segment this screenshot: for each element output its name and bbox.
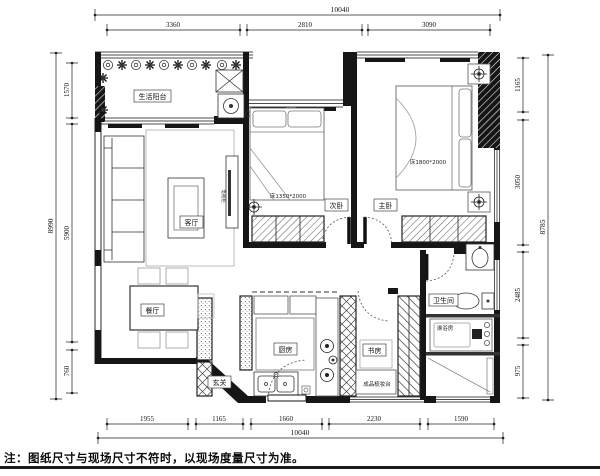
svg-text:餐厅: 餐厅 bbox=[146, 306, 160, 315]
label-study: 书房 bbox=[363, 344, 386, 356]
dim-lines-left bbox=[56, 53, 72, 399]
window-balcony-living bbox=[101, 118, 214, 128]
dim-left-3: 760 bbox=[63, 365, 71, 376]
tv bbox=[228, 170, 231, 216]
label-master-bed-size: 床1800*2000 bbox=[410, 158, 447, 166]
wardrobe-bedroom2 bbox=[252, 216, 324, 242]
window-balcony-top bbox=[95, 52, 253, 58]
label-dining: 餐厅 bbox=[141, 304, 164, 316]
balcony-furniture bbox=[98, 60, 251, 118]
label-living: 客厅 bbox=[180, 216, 203, 228]
drawing-note: 注：图纸尺寸与现场尺寸不符时，以现场度量尺寸为准。 bbox=[4, 450, 304, 466]
dim-bottom-5: 1590 bbox=[454, 415, 469, 423]
svg-text:卫生间: 卫生间 bbox=[433, 296, 454, 305]
master-furniture bbox=[396, 64, 490, 212]
label-kitchen: 厨房 bbox=[274, 343, 297, 355]
cabinet-kitchen-study bbox=[340, 296, 356, 396]
svg-text:客厅: 客厅 bbox=[185, 218, 199, 227]
svg-text:主卧: 主卧 bbox=[379, 201, 393, 210]
dim-right-4: 975 bbox=[514, 365, 522, 376]
dim-top-total: 10040 bbox=[331, 5, 350, 14]
label-entry: 玄关 bbox=[208, 376, 231, 388]
dim-left-1: 1570 bbox=[63, 83, 71, 98]
shower-tray bbox=[430, 319, 492, 351]
dim-bottom-total: 10040 bbox=[291, 428, 310, 437]
svg-text:生活阳台: 生活阳台 bbox=[139, 92, 167, 101]
window-bath-right bbox=[494, 260, 501, 310]
window-master-right bbox=[494, 150, 501, 222]
dim-top-1: 3360 bbox=[166, 21, 181, 29]
toilet bbox=[453, 293, 494, 309]
svg-text:次卧: 次卧 bbox=[330, 201, 344, 210]
dim-bottom-3: 1660 bbox=[279, 415, 294, 423]
dim-left-total: 8990 bbox=[46, 218, 55, 233]
dim-top-3: 3090 bbox=[422, 21, 437, 29]
dim-bottom-4: 2230 bbox=[367, 415, 382, 423]
bottom-rule bbox=[0, 466, 600, 469]
dim-bottom-2: 1165 bbox=[212, 415, 226, 423]
label-bedroom2: 次卧 bbox=[325, 199, 348, 211]
window-bottom-2 bbox=[436, 397, 490, 402]
kitchen-wall-strip bbox=[240, 296, 252, 370]
svg-text:书房: 书房 bbox=[368, 346, 382, 355]
entry-wall-strip bbox=[197, 298, 212, 360]
dim-right-2: 3050 bbox=[514, 175, 522, 190]
label-tv-cabinet: 电视柜 bbox=[220, 189, 227, 203]
svg-text:玄关: 玄关 bbox=[213, 378, 227, 387]
entry-door-leaf bbox=[268, 395, 306, 401]
door-arc-study bbox=[358, 291, 388, 321]
living-room-furniture bbox=[104, 130, 238, 266]
door-arc-master bbox=[364, 217, 392, 245]
dim-top-2: 2810 bbox=[298, 21, 313, 29]
dim-right-total: 8785 bbox=[538, 219, 547, 234]
svg-text:厨房: 厨房 bbox=[279, 345, 293, 354]
window-master-top bbox=[357, 52, 478, 62]
label-balcony: 生活阳台 bbox=[134, 90, 171, 102]
door-arc-bedroom2 bbox=[322, 217, 350, 245]
dim-right-3: 2485 bbox=[514, 288, 522, 303]
label-master: 主卧 bbox=[374, 199, 397, 211]
dim-left-2: 5900 bbox=[63, 226, 71, 241]
dim-right-1: 1165 bbox=[514, 78, 522, 92]
label-bathroom: 卫生间 bbox=[429, 294, 458, 306]
tv-cabinet bbox=[226, 156, 238, 228]
label-bed2-size: 床1350*2000 bbox=[270, 192, 307, 200]
window-bottom-1 bbox=[350, 397, 424, 402]
basin bbox=[466, 244, 494, 270]
floorplan-drawing: 10040 3360 2810 3090 1955 1165 1660 2230… bbox=[0, 0, 600, 476]
utility-balcony bbox=[428, 358, 493, 394]
hatched-wall-balcony bbox=[95, 86, 105, 122]
label-dresser: 成品梳妆台 bbox=[363, 380, 391, 388]
door-arc-bathroom bbox=[426, 253, 454, 281]
floorplan-page: 10040 3360 2810 3090 1955 1165 1660 2230… bbox=[0, 0, 600, 476]
dim-bottom-1: 1955 bbox=[140, 415, 155, 423]
kitchen-sink bbox=[254, 372, 298, 396]
wardrobe-master bbox=[402, 216, 486, 242]
label-shower: 淋浴房 bbox=[437, 324, 454, 332]
